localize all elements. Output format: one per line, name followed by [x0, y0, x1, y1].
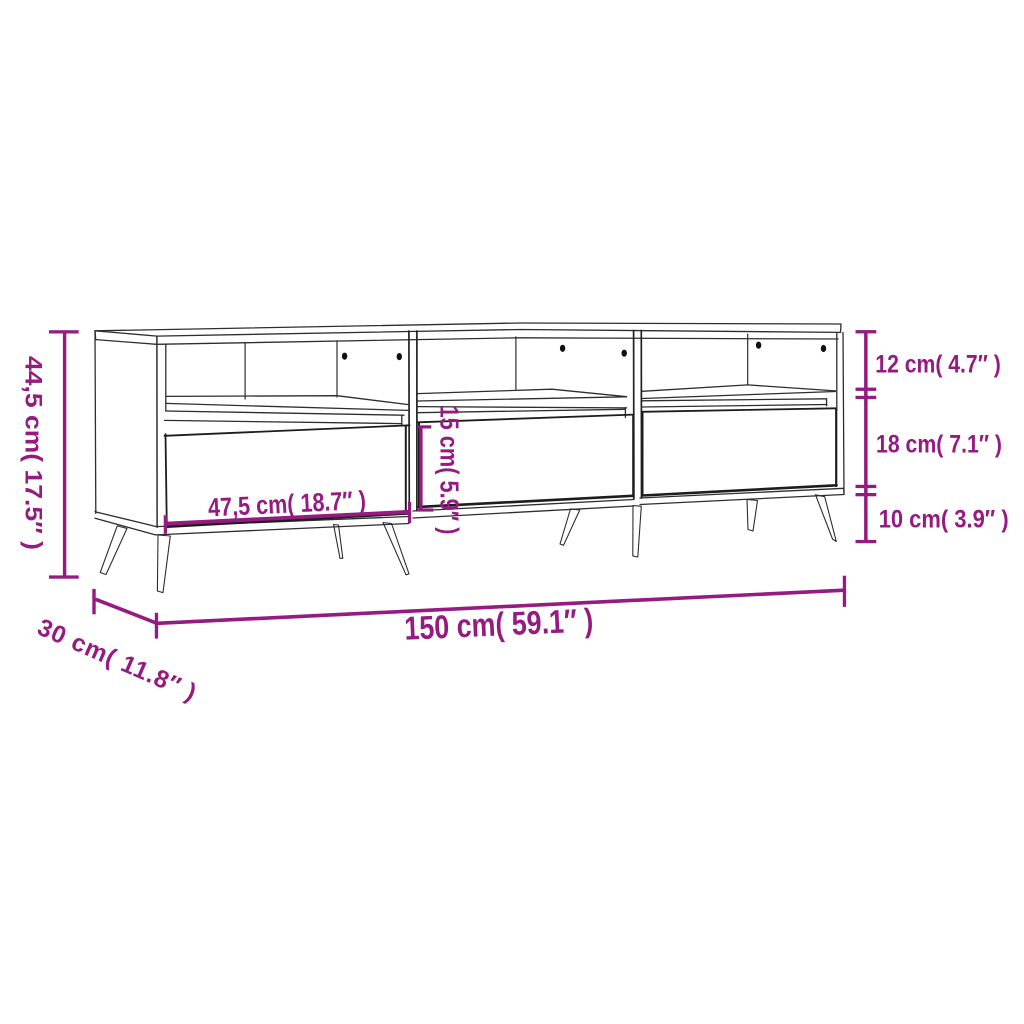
svg-text:18 cm( 7.1″ ): 18 cm( 7.1″ ) — [876, 431, 1002, 459]
svg-text:10 cm( 3.9″ ): 10 cm( 3.9″ ) — [879, 506, 1009, 534]
svg-text:12 cm( 4.7″ ): 12 cm( 4.7″ ) — [875, 350, 1001, 378]
svg-text:15 cm( 5.9″ ): 15 cm( 5.9″ ) — [435, 406, 465, 535]
svg-text:44,5 cm( 17.5″ ): 44,5 cm( 17.5″ ) — [19, 356, 46, 550]
